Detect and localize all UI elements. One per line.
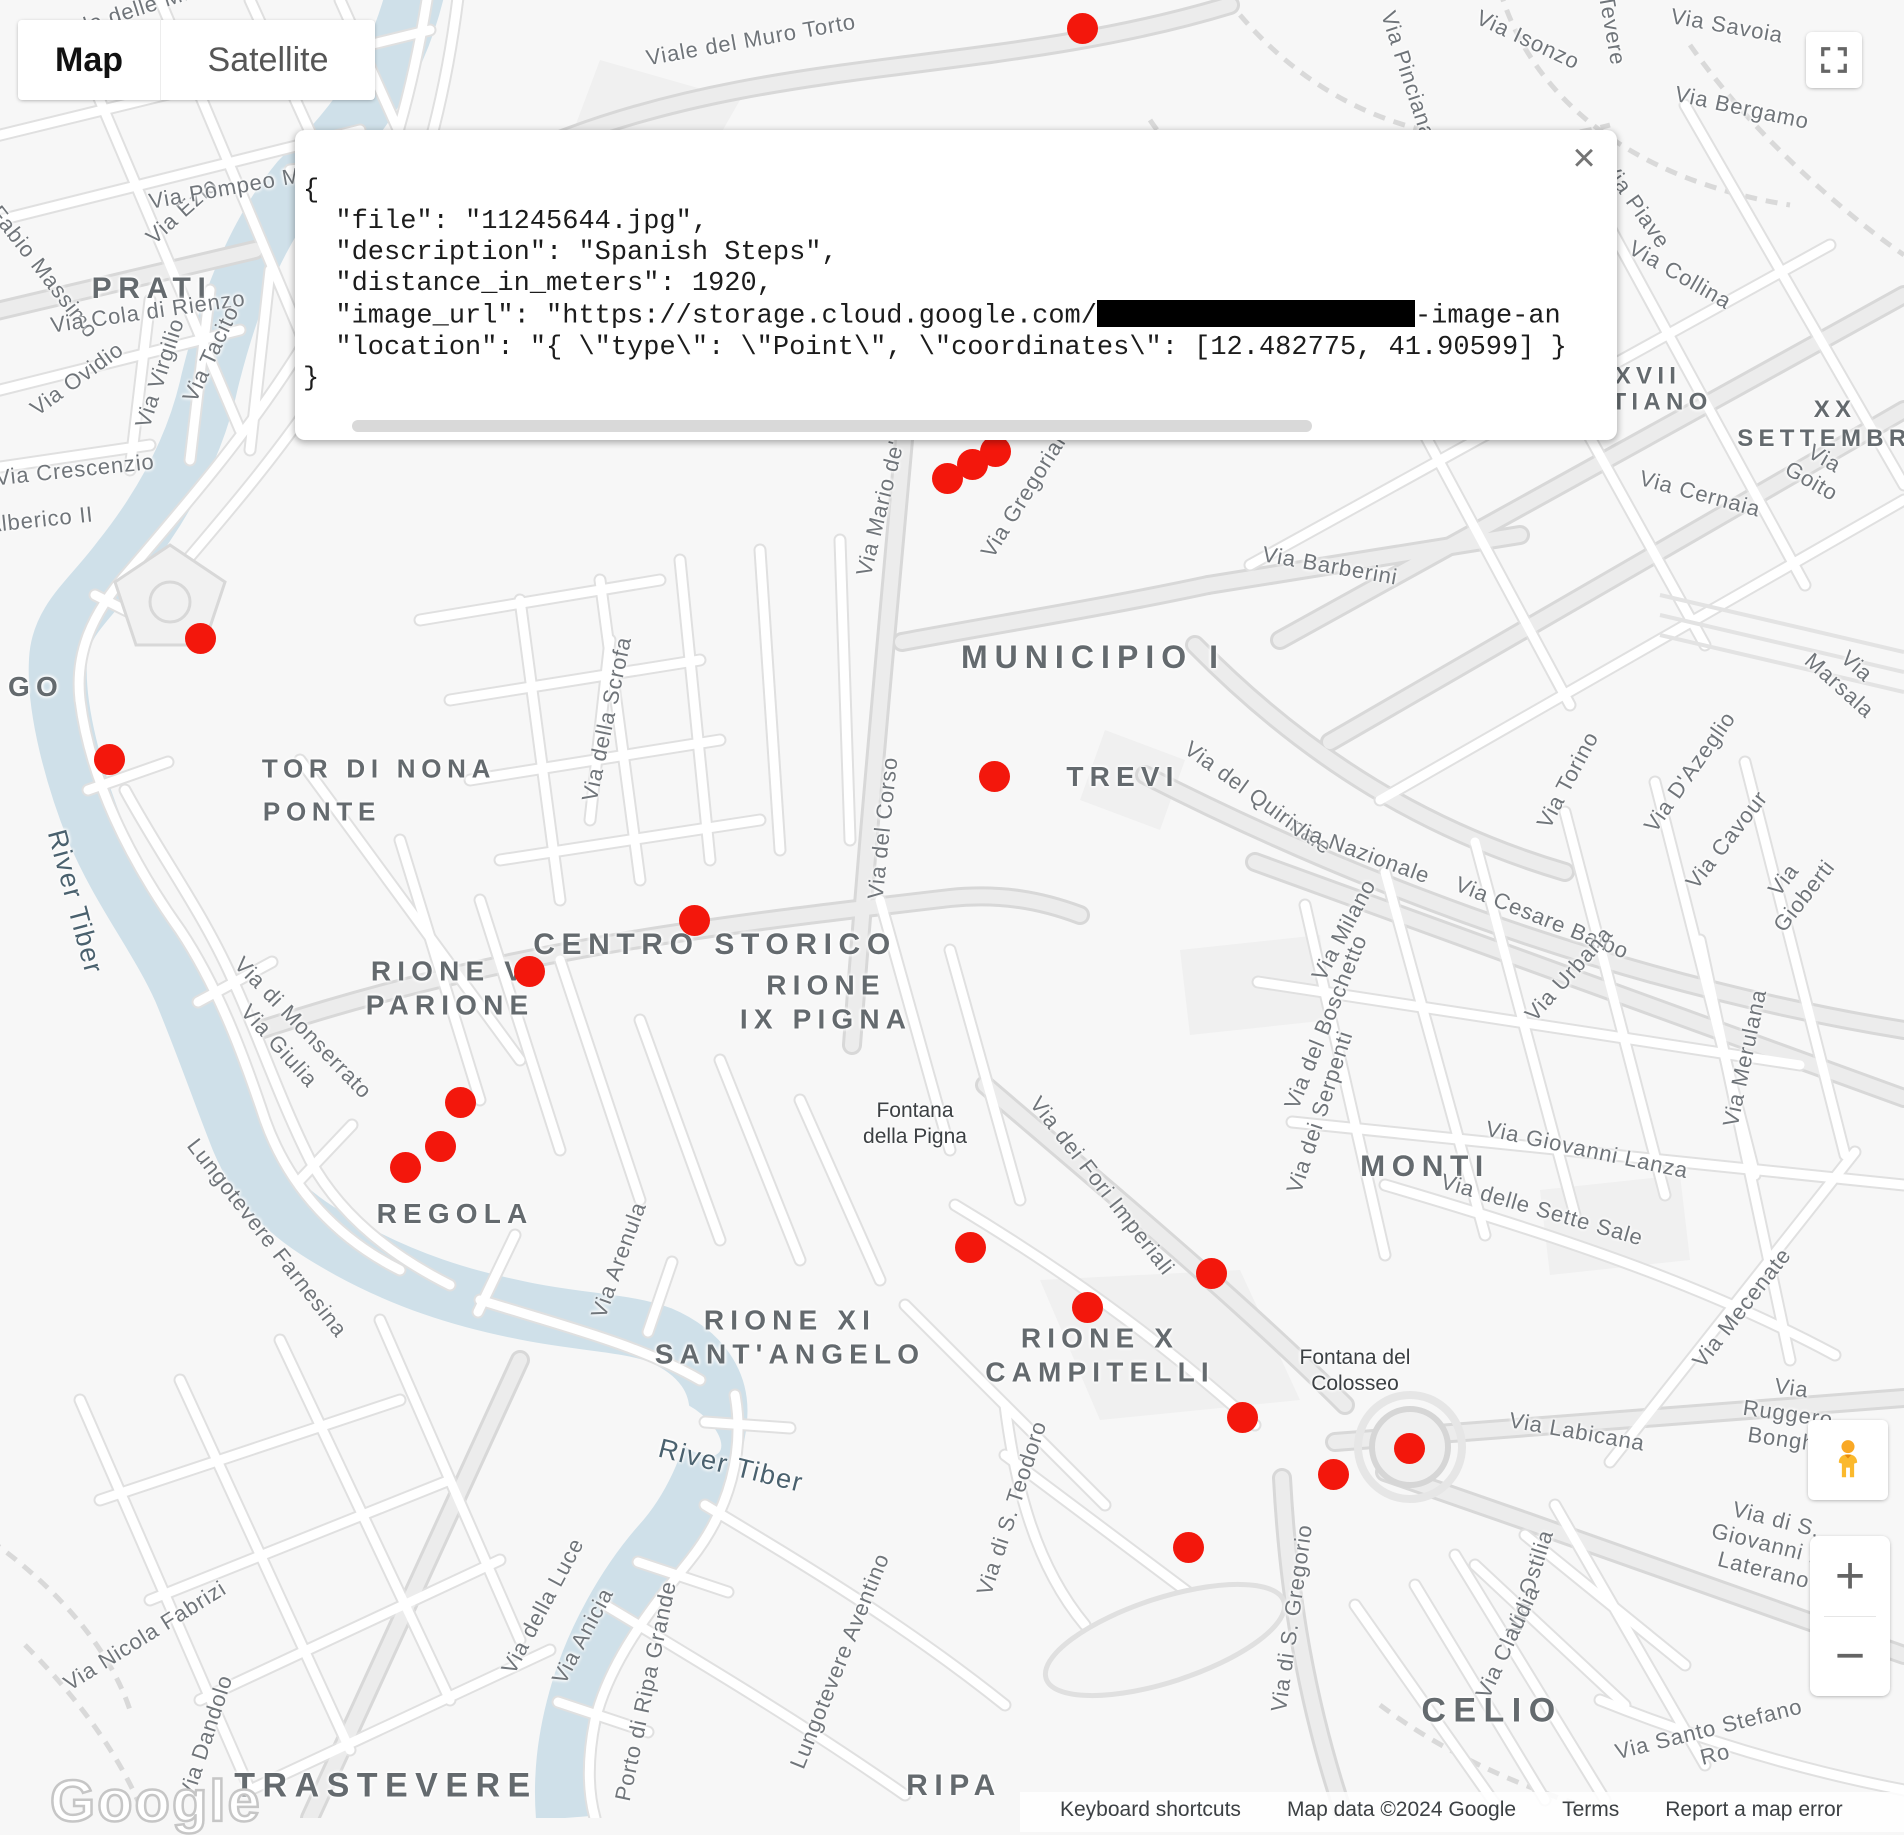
json-line: "image_url": "https://storage.cloud.goog… — [303, 300, 1603, 333]
horizontal-scrollbar[interactable] — [352, 420, 1312, 432]
pegman-icon — [1825, 1437, 1871, 1483]
pegman-button[interactable] — [1808, 1420, 1888, 1500]
map-marker[interactable] — [955, 1232, 986, 1263]
map-marker[interactable] — [932, 463, 963, 494]
map-marker[interactable] — [679, 905, 710, 936]
map-marker[interactable] — [1173, 1532, 1204, 1563]
map-type-map-button[interactable]: Map — [18, 20, 161, 100]
map-marker[interactable] — [390, 1152, 421, 1183]
map-app: { "map_controls": { "map_label": "Map", … — [0, 0, 1904, 1818]
map-marker[interactable] — [94, 744, 125, 775]
google-logo: Google — [50, 1768, 262, 1835]
info-window: × { "file": "11245644.jpg", "description… — [295, 130, 1617, 440]
close-icon[interactable]: × — [1561, 136, 1607, 182]
map-data-copyright: Map data ©2024 Google — [1287, 1798, 1516, 1822]
map-type-satellite-button[interactable]: Satellite — [161, 20, 375, 100]
fullscreen-icon — [1819, 45, 1849, 75]
map-marker[interactable] — [425, 1131, 456, 1162]
fullscreen-button[interactable] — [1806, 32, 1862, 88]
map-marker[interactable] — [445, 1087, 476, 1118]
json-line: "location": "{ \"type\": \"Point\", \"co… — [303, 333, 1603, 364]
keyboard-shortcuts-link[interactable]: Keyboard shortcuts — [1060, 1798, 1241, 1822]
map-marker[interactable] — [1394, 1433, 1425, 1464]
map-marker[interactable] — [185, 623, 216, 654]
map-marker[interactable] — [1318, 1459, 1349, 1490]
attribution-bar: Keyboard shortcutsMap data ©2024 GoogleT… — [1020, 1792, 1904, 1832]
json-line: "file": "11245644.jpg", — [303, 207, 1603, 238]
map-marker[interactable] — [979, 761, 1010, 792]
map-marker[interactable] — [1067, 13, 1098, 44]
json-line: { — [303, 176, 1603, 207]
redacted-text — [1097, 300, 1415, 327]
map-marker[interactable] — [1072, 1292, 1103, 1323]
zoom-out-button[interactable]: − — [1810, 1617, 1890, 1697]
zoom-control: + − — [1810, 1536, 1890, 1696]
map-type-control: Map Satellite — [18, 20, 375, 100]
info-window-json: { "file": "11245644.jpg", "description":… — [303, 176, 1603, 406]
map-marker[interactable] — [1227, 1402, 1258, 1433]
json-line: "distance_in_meters": 1920, — [303, 269, 1603, 300]
json-line: "description": "Spanish Steps", — [303, 238, 1603, 269]
zoom-in-button[interactable]: + — [1810, 1536, 1890, 1616]
map-marker[interactable] — [514, 956, 545, 987]
map-marker[interactable] — [1196, 1258, 1227, 1289]
json-line: } — [303, 364, 1603, 395]
report-error-link[interactable]: Report a map error — [1665, 1798, 1842, 1822]
terms-link[interactable]: Terms — [1562, 1798, 1619, 1822]
